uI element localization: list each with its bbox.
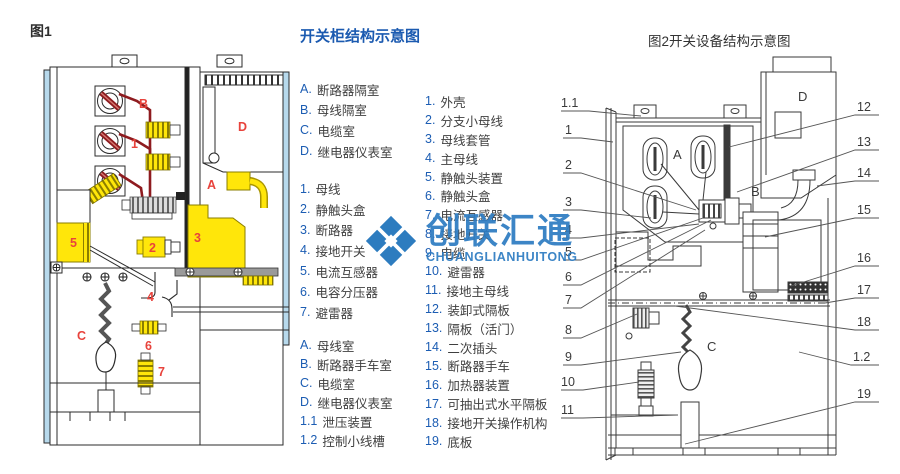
legend-item: 13.隔板（活门） bbox=[425, 319, 547, 338]
legend-item: 17.可抽出式水平隔板 bbox=[425, 394, 547, 413]
fig2-left-label: 5 bbox=[565, 245, 572, 259]
fig1-diagram: B D 1 A 5 2 3 4 C 6 7 bbox=[37, 50, 295, 452]
fig2-caption: 图2开关设备结构示意图 bbox=[648, 30, 791, 50]
legend-item: 9.电缆 bbox=[425, 243, 547, 262]
legend-item: 3.断路器 bbox=[300, 220, 393, 241]
fig2-right-label: 18 bbox=[857, 315, 871, 329]
fig2-right-label: 15 bbox=[857, 203, 871, 217]
legend-item: 19.底板 bbox=[425, 432, 547, 451]
fig2-arrester bbox=[638, 370, 654, 398]
legend-item: 2.分支小母线 bbox=[425, 111, 547, 130]
fig2-left-label: 11 bbox=[561, 403, 574, 417]
fig2-left-label: 1.1 bbox=[561, 96, 578, 110]
legend-item: A.母线室 bbox=[300, 336, 393, 355]
fig1-label-3: 3 bbox=[194, 231, 201, 245]
legend-item: 5.电流互感器 bbox=[300, 261, 393, 282]
fig2-left-label: 10 bbox=[561, 375, 575, 389]
fig2-left-label: 9 bbox=[565, 350, 572, 364]
legend-item: 8.接地开关 bbox=[425, 224, 547, 243]
legend-item: 1.外壳 bbox=[425, 92, 547, 111]
legend-item: 7.电流互感器 bbox=[425, 205, 547, 224]
page: { "fig1": { "caption": "图1", "labels": {… bbox=[0, 0, 900, 474]
legend-item: 6.静触头盒 bbox=[425, 186, 547, 205]
fig1-label-C: C bbox=[77, 329, 86, 343]
legend-item: 10.避雷器 bbox=[425, 262, 547, 281]
legend-item: 16.加热器装置 bbox=[425, 375, 547, 394]
legend-item: 15.断路器手车 bbox=[425, 356, 547, 375]
fig2-grounding-switch bbox=[633, 308, 649, 328]
fig2-heater-strip bbox=[788, 282, 828, 293]
legend-item: 6.电容分压器 bbox=[300, 281, 393, 302]
fig1-vent-grille bbox=[205, 75, 283, 85]
fig2-horizontal-partition bbox=[608, 293, 830, 307]
fig2-left-label: 4 bbox=[565, 223, 572, 237]
legend-item: 14.二次插头 bbox=[425, 338, 547, 357]
legend-item: 12.装卸式隔板 bbox=[425, 300, 547, 319]
fig2-left-label: 3 bbox=[565, 195, 572, 209]
legend-item: 4.主母线 bbox=[425, 149, 547, 168]
legend-item: B.母线隔室 bbox=[300, 100, 393, 121]
legend-item: A.断路器隔室 bbox=[300, 79, 393, 100]
fig1-label-1: 1 bbox=[131, 137, 138, 151]
fig2-label-D: D bbox=[798, 89, 807, 104]
legend-item: 18.接地开关操作机构 bbox=[425, 413, 547, 432]
legend-item: 7.避雷器 bbox=[300, 302, 393, 323]
legend-item: 11.接地主母线 bbox=[425, 281, 547, 300]
legend-item: 1.母线 bbox=[300, 178, 393, 199]
fig2-diagram: A B C D 1.1 1 2 3 4 5 6 7 8 9 10 11 12 1… bbox=[553, 52, 898, 472]
fig1-label-7: 7 bbox=[158, 365, 165, 379]
legend-item: C.电缆室 bbox=[300, 120, 393, 141]
fig1-label-A: A bbox=[207, 178, 216, 192]
fig1-label-2: 2 bbox=[149, 241, 156, 255]
fig2-label-C: C bbox=[707, 339, 716, 354]
fig2-right-label: 12 bbox=[857, 100, 871, 114]
fig1-label-D: D bbox=[238, 120, 247, 134]
fig2-left-label: 1 bbox=[565, 123, 572, 137]
legend-item: 2.静触头盒 bbox=[300, 199, 393, 220]
legend-item: 5.静触头装置 bbox=[425, 168, 547, 187]
legend-title: 开关柜结构示意图 bbox=[300, 25, 420, 46]
fig2-right-label: 19 bbox=[857, 387, 871, 401]
legend-item: 1.2控制小线槽 bbox=[300, 431, 393, 450]
legend-column-2: 1.外壳 2.分支小母线 3.母线套管 4.主母线 5.静触头装置 6.静触头盒… bbox=[425, 92, 547, 451]
legend-item: D.继电器仪表室 bbox=[300, 393, 393, 412]
fig2-right-label: 1.2 bbox=[853, 350, 870, 364]
fig2-right-label: 17 bbox=[857, 283, 871, 297]
legend-item: 1.1泄压装置 bbox=[300, 412, 393, 431]
fig2-left-label: 8 bbox=[565, 323, 572, 337]
fig1-label-6: 6 bbox=[145, 339, 152, 353]
fig1-caption: 图1 bbox=[30, 21, 52, 41]
fig1-label-4: 4 bbox=[147, 290, 154, 304]
legend-item: C.电缆室 bbox=[300, 374, 393, 393]
legend-column-1: A.断路器隔室 B.母线隔室 C.电缆室 D.继电器仪表室 1.母线 2.静触头… bbox=[300, 79, 393, 450]
fig2-cable bbox=[611, 305, 702, 448]
fig2-left-label: 7 bbox=[565, 293, 572, 307]
fig2-label-A: A bbox=[673, 147, 682, 162]
fig1-label-B: B bbox=[139, 97, 148, 111]
legend-item: 4.接地开关 bbox=[300, 240, 393, 261]
legend-item: 3.母线套管 bbox=[425, 130, 547, 149]
fig2-right-label: 13 bbox=[857, 135, 871, 149]
legend-item: D.继电器仪表室 bbox=[300, 141, 393, 162]
fig2-left-label: 2 bbox=[565, 158, 572, 172]
fig1-label-5: 5 bbox=[70, 236, 77, 250]
fig2-left-label: 6 bbox=[565, 270, 572, 284]
legend-item: B.断路器手车室 bbox=[300, 355, 393, 374]
fig2-right-label: 16 bbox=[857, 251, 871, 265]
fig2-right-label: 14 bbox=[857, 166, 871, 180]
